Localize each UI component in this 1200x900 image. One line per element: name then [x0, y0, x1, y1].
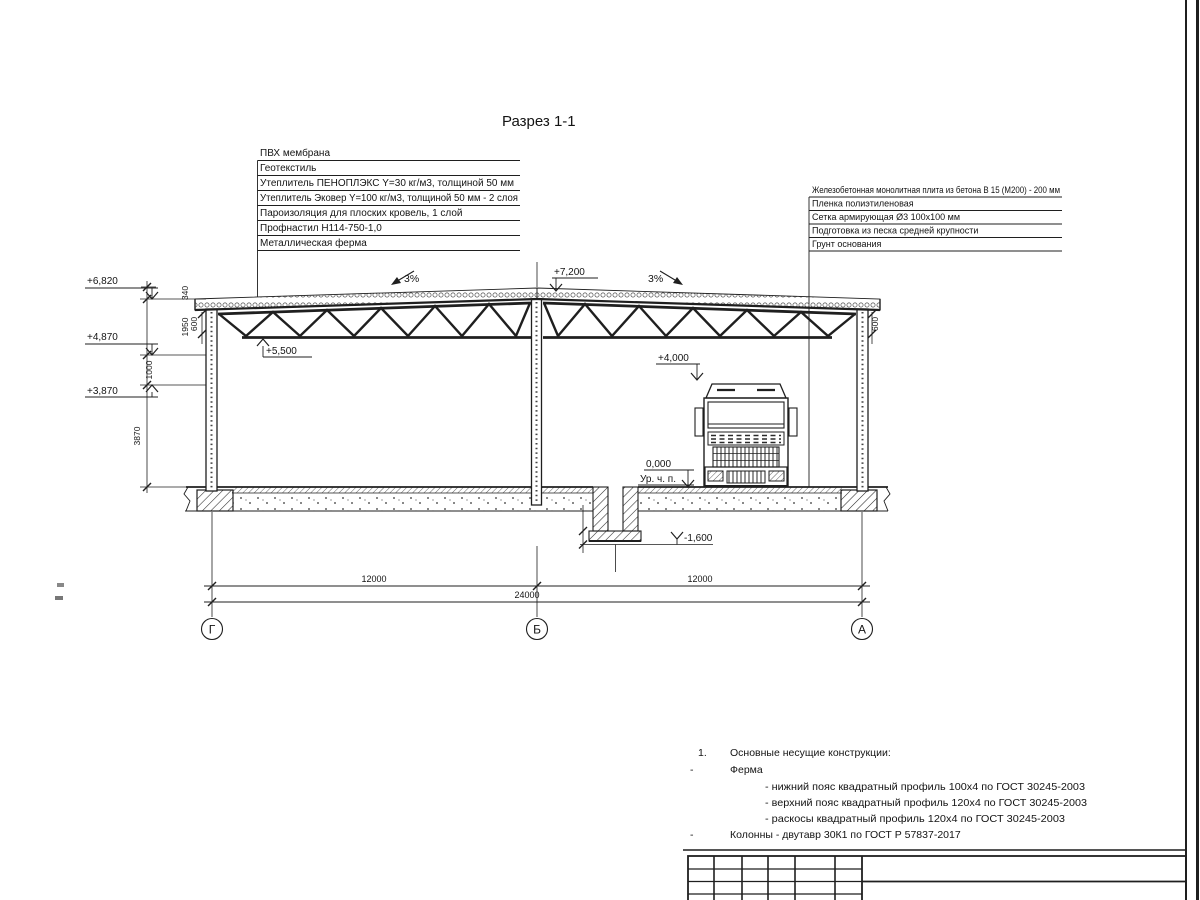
elevation-label: +4,870 — [87, 332, 118, 343]
drawing-title: Разрез 1-1 — [502, 113, 576, 130]
truck-headlight-right — [769, 471, 784, 481]
slope-mark-right: 3% — [648, 271, 683, 285]
foundation-left — [197, 490, 233, 511]
elevation-mark-bottom-chord: +5,500 — [257, 339, 312, 357]
break-line-right — [884, 487, 890, 511]
note-truss-detail: - раскосы квадратный профиль 120х4 по ГО… — [765, 813, 1065, 825]
note-number: 1. — [698, 747, 707, 759]
truck-headlight-left — [708, 471, 723, 481]
elevation-mark-clearance: +4,000 — [656, 353, 703, 380]
elevation-label: +4,000 — [658, 353, 689, 364]
truck-bumper-grille — [727, 471, 765, 483]
slope-label: 3% — [648, 273, 663, 285]
elevation-label: -1,600 — [684, 533, 713, 544]
elevation-caption: Ур. ч. п. — [640, 474, 676, 485]
elevation-label: +3,870 — [87, 386, 118, 397]
roof-callout-row: Утеплитель ПЕНОПЛЭКС Y=30 кг/м3, толщино… — [260, 178, 514, 189]
note-truss-label: Ферма — [730, 764, 763, 776]
note-heading: Основные несущие конструкции: — [730, 747, 891, 759]
roof-callout-row: Пароизоляция для плоских кровель, 1 слой — [260, 208, 463, 219]
dim-panel-zone: 1000 — [144, 360, 154, 379]
elevation-label: +5,500 — [266, 346, 297, 357]
roof-callout-row: Профнастил Н114-750-1,0 — [260, 222, 382, 234]
roof-callout-row: ПВХ мембрана — [260, 147, 330, 159]
axis-label-b: Б — [533, 623, 541, 637]
dim-600-label: 600 — [870, 317, 880, 331]
note-truss-detail: - нижний пояс квадратный профиль 100х4 п… — [765, 781, 1085, 793]
axis-label-a: А — [858, 623, 866, 637]
roof-callout-row: Геотекстиль — [260, 163, 316, 174]
note-dash: - — [690, 829, 694, 841]
elevation-mark-pit-bottom: -1,600 — [671, 532, 713, 545]
slope-mark-left: 3% — [391, 271, 419, 285]
floor-callout-row: Железобетонная монолитная плита из бетон… — [812, 185, 1060, 195]
axis-label-g: Г — [209, 623, 216, 637]
truck-mirror-right — [789, 408, 797, 436]
roof-callout-row: Металлическая ферма — [260, 237, 367, 249]
elevation-mark-floor: 0,000 Ур. ч. п. — [638, 459, 694, 487]
floor-callout-row: Грунт основания — [812, 239, 882, 249]
notes-block: 1. Основные несущие конструкции: - Ферма… — [690, 747, 1087, 841]
column-middle — [532, 299, 542, 505]
truck-grille-lower — [713, 447, 779, 467]
floor-callout-list: Железобетонная монолитная плита из бетон… — [809, 185, 1062, 487]
foundation-right — [841, 490, 877, 511]
truck-mirror-left — [695, 408, 703, 436]
drawing-sheet: Разрез 1-1 ПВХ мембрана Геотекстиль Утеп… — [0, 0, 1200, 900]
vertical-dim-chain: 340 1950 1000 3870 — [132, 281, 206, 493]
elevation-mark-ridge: +7,200 — [550, 267, 598, 291]
slope-arrow — [673, 277, 683, 285]
dim-600-right: 600 — [868, 310, 880, 344]
note-truss-detail: - верхний пояс квадратный профиль 120х4 … — [765, 797, 1087, 809]
dim-row-spans: 12000 12000 — [204, 512, 870, 617]
dim-span-right: 12000 — [687, 574, 712, 584]
section-drawing-svg: Разрез 1-1 ПВХ мембрана Геотекстиль Утеп… — [0, 0, 1200, 900]
slope-label: 3% — [404, 273, 419, 285]
wall-left — [206, 309, 217, 491]
floor-callout-row: Сетка армирующая Ø3 100х100 мм — [812, 212, 960, 222]
floor-callout-row: Пленка полиэтиленовая — [812, 199, 914, 209]
dim-parapet: 340 — [180, 286, 190, 300]
wall-right — [857, 309, 868, 491]
elevation-label: +6,820 — [87, 276, 118, 287]
dim-wall-height: 3870 — [132, 426, 142, 445]
roof-callout-list: ПВХ мембрана Геотекстиль Утеплитель ПЕНО… — [258, 147, 521, 297]
dim-600-left: 600 — [189, 310, 206, 344]
note-dash: - — [690, 764, 694, 776]
note-columns: Колонны - двутавр 30К1 по ГОСТ Р 57837-2… — [730, 829, 961, 841]
title-block — [688, 856, 1186, 900]
elevation-label: +7,200 — [554, 267, 585, 278]
truck — [695, 384, 797, 486]
slope-arrow — [391, 277, 401, 285]
dim-span-left: 12000 — [361, 574, 386, 584]
dim-600-label: 600 — [189, 317, 199, 331]
floor-callout-row: Подготовка из песка средней крупности — [812, 226, 978, 236]
stray-marks — [55, 583, 64, 600]
elevation-label: 0,000 — [646, 459, 671, 470]
axis-bubbles: Г Б А — [202, 619, 873, 640]
break-line-left — [184, 487, 190, 511]
roof-callout-row: Утеплитель Эковер Y=100 кг/м3, толщиной … — [260, 193, 518, 204]
dim-total: 24000 — [514, 590, 539, 600]
